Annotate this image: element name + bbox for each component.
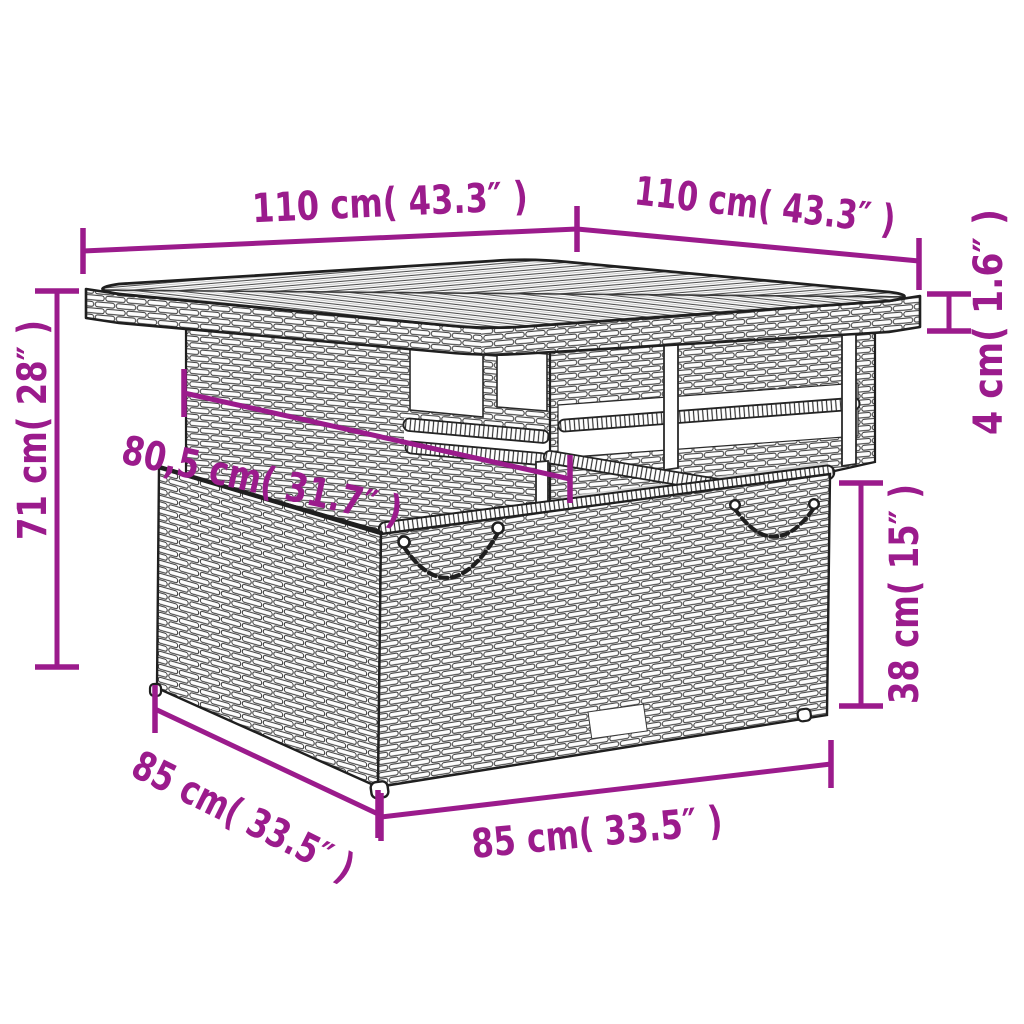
- dim-label-top-width-left: 110 cm( 43.3″ ): [251, 174, 529, 232]
- dim-label-base-height: 38 cm( 15″ ): [882, 484, 928, 704]
- frame-post: [664, 344, 678, 470]
- dim-label-overall-height: 71 cm( 28″ ): [10, 320, 56, 540]
- dim-label-base-width: 85 cm( 33.5″ ): [469, 798, 724, 868]
- frame-post: [842, 333, 856, 466]
- pedestal-window: [497, 350, 547, 411]
- dim-overall-height: 71 cm( 28″ ): [10, 291, 79, 667]
- dim-top-thickness: 4 cm( 1.6″ ): [927, 209, 1012, 435]
- table-illustration: [80, 248, 920, 799]
- dim-label-top-thickness: 4 cm( 1.6″ ): [966, 209, 1012, 435]
- dim-base-height: 38 cm( 15″ ): [839, 483, 928, 706]
- dim-label-top-width-right: 110 cm( 43.3″ ): [632, 168, 898, 243]
- product-dimension-diagram: 110 cm( 43.3″ ) 110 cm( 43.3″ ) 4 cm( 1.…: [0, 0, 1024, 1024]
- table-dimension-drawing: 110 cm( 43.3″ ) 110 cm( 43.3″ ) 4 cm( 1.…: [0, 0, 1024, 1024]
